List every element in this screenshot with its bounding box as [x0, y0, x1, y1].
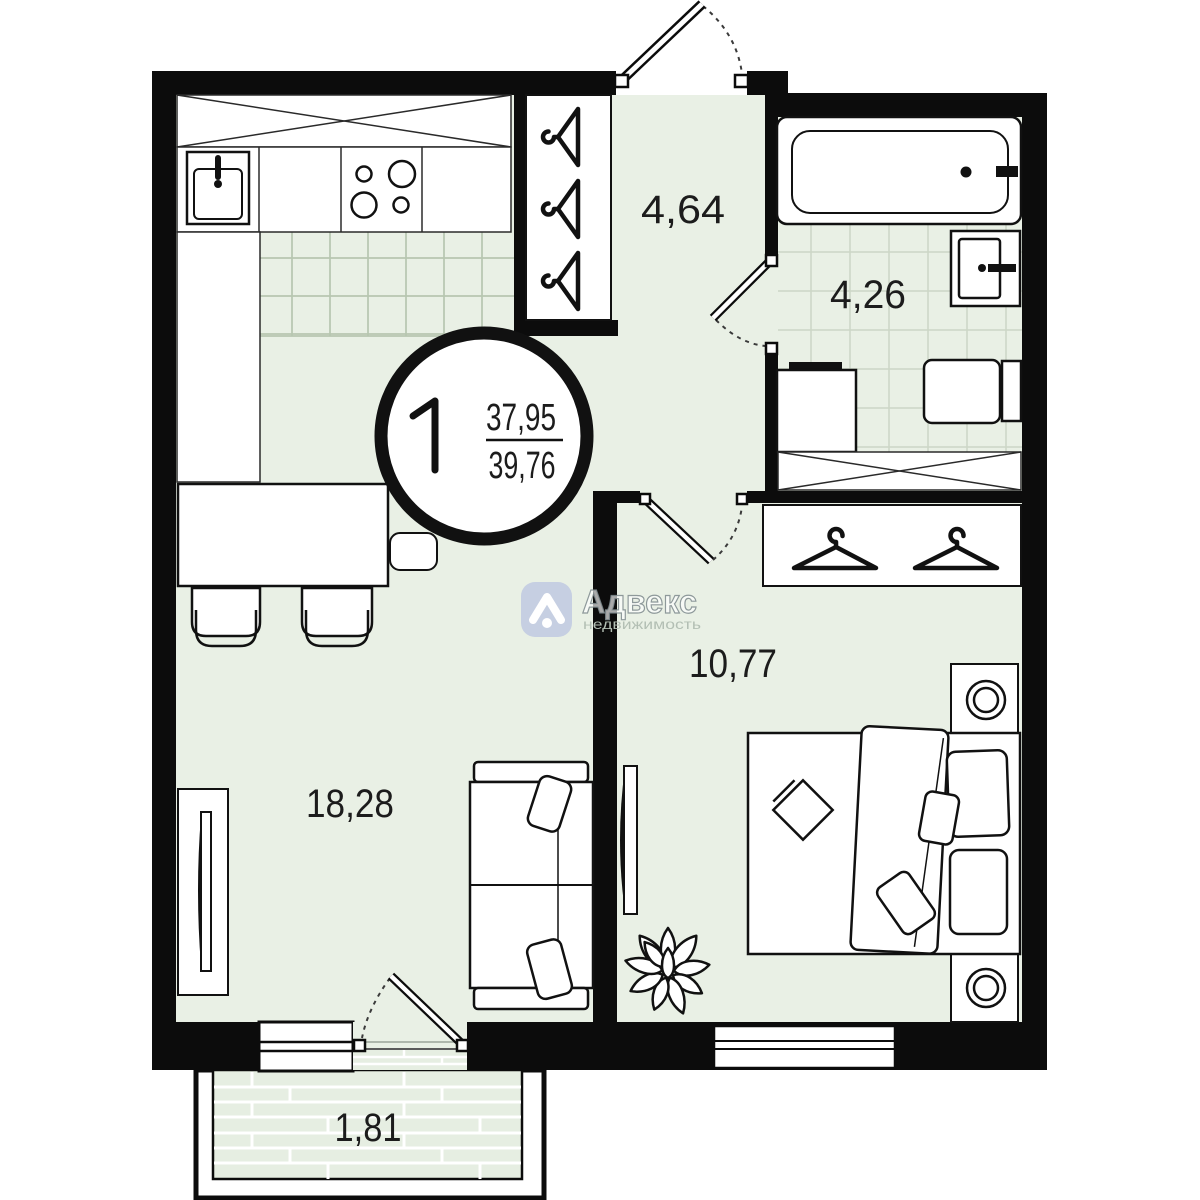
- svg-text:1,81: 1,81: [335, 1106, 402, 1150]
- svg-text:10,77: 10,77: [689, 642, 777, 686]
- svg-text:4,64: 4,64: [641, 188, 725, 232]
- svg-text:4,26: 4,26: [830, 273, 906, 317]
- svg-text:18,28: 18,28: [306, 782, 394, 826]
- svg-text:37,95: 37,95: [486, 397, 556, 439]
- svg-text:39,76: 39,76: [489, 445, 556, 487]
- svg-text:Адвекс: Адвекс: [582, 583, 697, 620]
- svg-text:недвижимость: недвижимость: [583, 617, 701, 632]
